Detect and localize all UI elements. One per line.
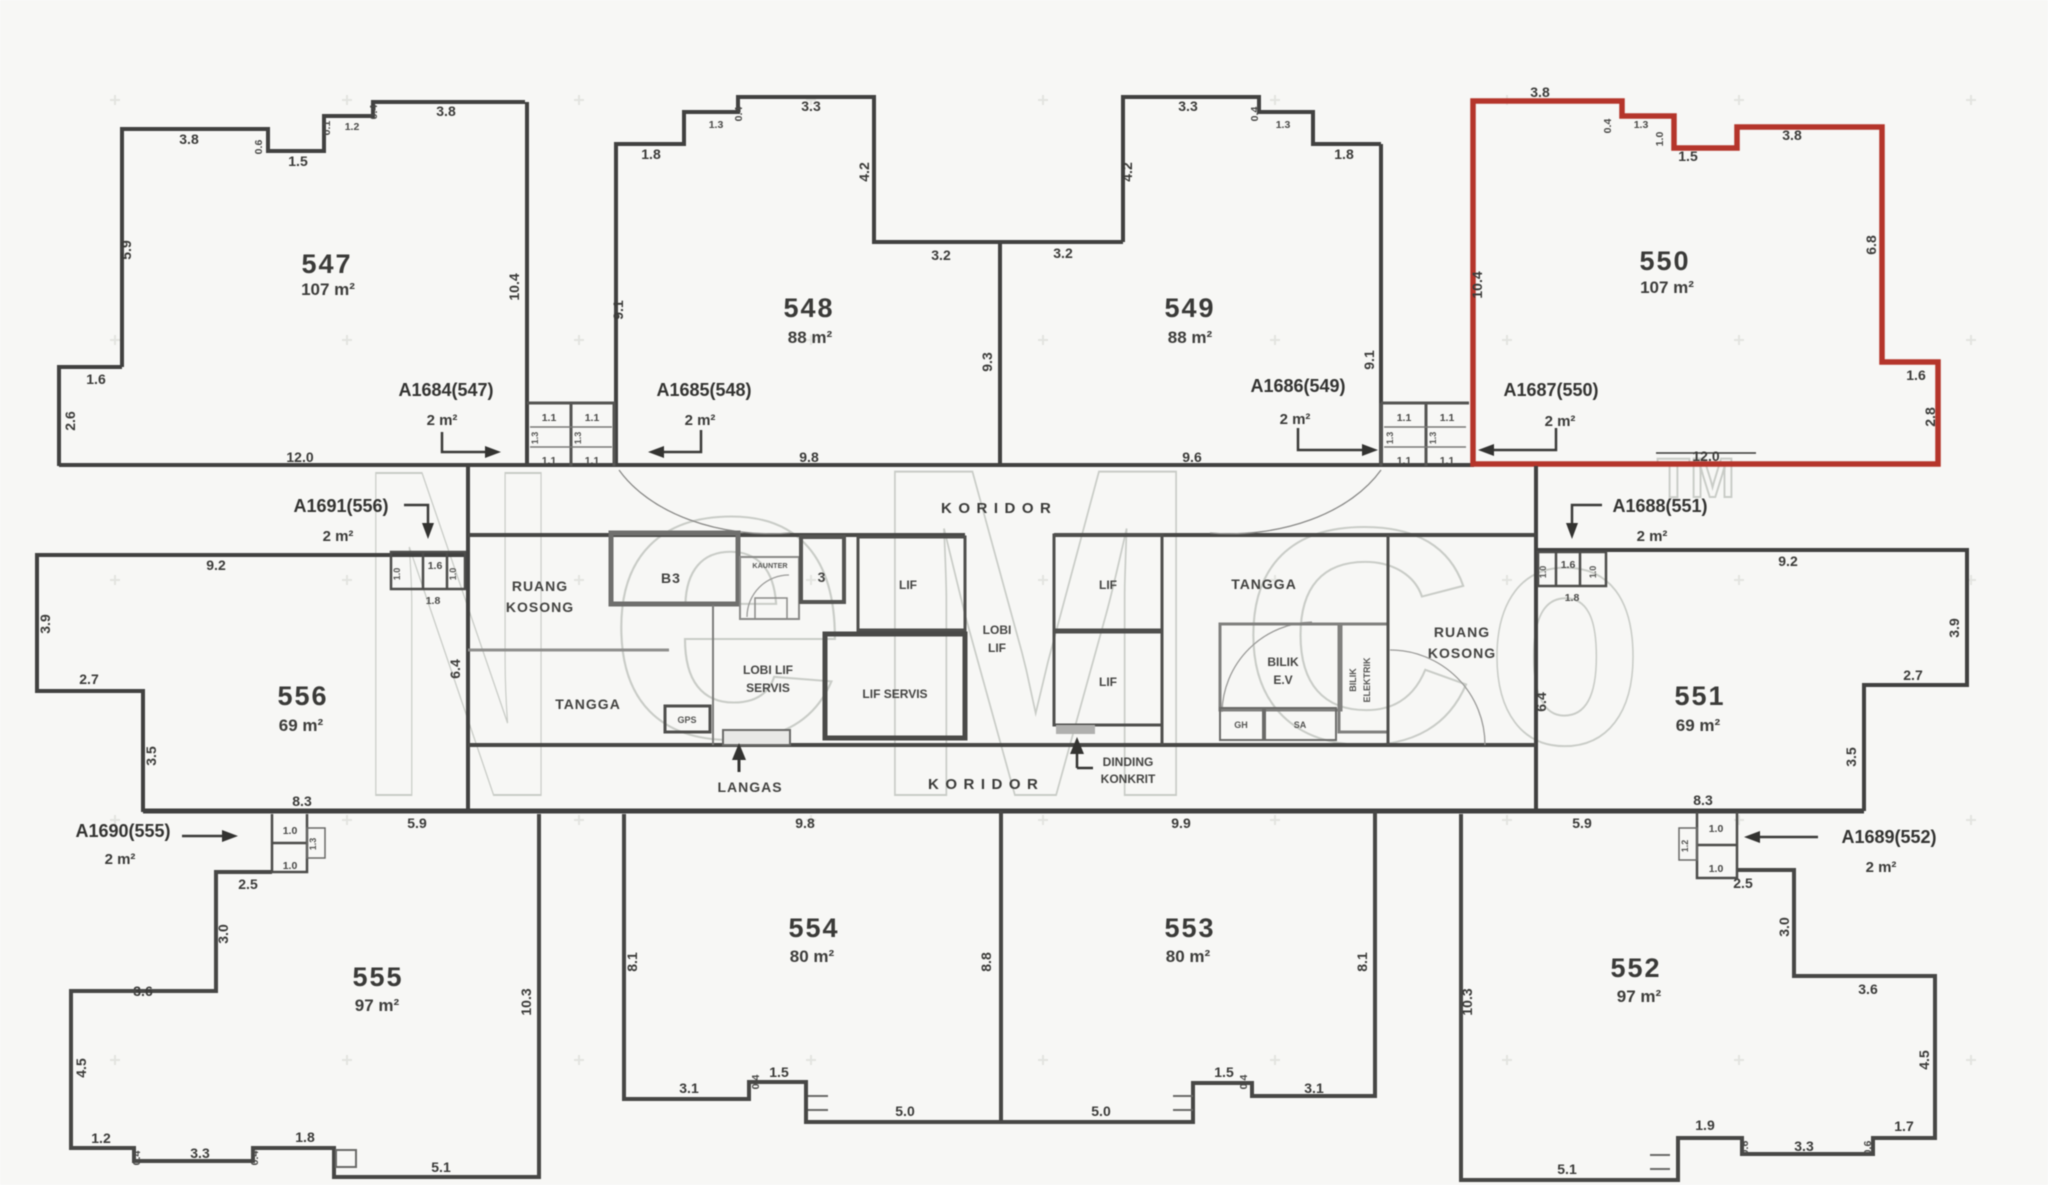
svg-text:3.8: 3.8 xyxy=(179,131,199,147)
svg-text:1.3: 1.3 xyxy=(573,432,583,445)
svg-text:BILIK: BILIK xyxy=(1267,655,1299,669)
svg-text:10.4: 10.4 xyxy=(506,273,522,300)
svg-text:2 m²: 2 m² xyxy=(685,412,716,429)
svg-text:3.1: 3.1 xyxy=(1304,1080,1324,1096)
svg-text:0.4: 0.4 xyxy=(1602,119,1614,134)
svg-text:552: 552 xyxy=(1610,953,1661,983)
svg-text:GH: GH xyxy=(1234,720,1248,730)
svg-text:9.8: 9.8 xyxy=(799,449,819,465)
svg-text:1.3: 1.3 xyxy=(1634,119,1649,131)
svg-text:LOBI LIF: LOBI LIF xyxy=(743,663,793,677)
svg-text:LIF: LIF xyxy=(988,641,1006,655)
svg-text:2.7: 2.7 xyxy=(79,671,99,687)
svg-text:A1690(555): A1690(555) xyxy=(75,821,170,841)
svg-text:3.8: 3.8 xyxy=(436,103,456,119)
svg-text:107 m²: 107 m² xyxy=(301,280,355,299)
svg-text:ELEKTRIK: ELEKTRIK xyxy=(1362,657,1372,703)
svg-text:9.1: 9.1 xyxy=(610,300,626,320)
svg-text:550: 550 xyxy=(1639,246,1690,276)
svg-text:RUANG: RUANG xyxy=(512,578,568,594)
svg-text:2.7: 2.7 xyxy=(1903,667,1923,683)
svg-text:1.0: 1.0 xyxy=(448,568,458,581)
svg-text:1.2: 1.2 xyxy=(91,1130,111,1146)
svg-text:KONKRIT: KONKRIT xyxy=(1101,772,1156,786)
svg-text:5.1: 5.1 xyxy=(431,1159,451,1175)
svg-text:1.5: 1.5 xyxy=(1214,1064,1234,1080)
svg-text:4.5: 4.5 xyxy=(1916,1050,1932,1070)
svg-text:A1689(552): A1689(552) xyxy=(1841,827,1936,847)
svg-text:LIF SERVIS: LIF SERVIS xyxy=(862,687,927,701)
svg-text:549: 549 xyxy=(1164,293,1215,323)
svg-text:DINDING: DINDING xyxy=(1103,755,1154,769)
svg-text:1.3: 1.3 xyxy=(1385,432,1395,445)
svg-text:2 m²: 2 m² xyxy=(323,528,354,545)
svg-text:SA: SA xyxy=(1294,720,1307,730)
svg-text:0.4: 0.4 xyxy=(1249,107,1261,122)
svg-text:1.5: 1.5 xyxy=(288,153,308,169)
svg-text:KAUNTER: KAUNTER xyxy=(752,561,788,570)
svg-text:KOSONG: KOSONG xyxy=(1428,645,1496,661)
svg-text:E.V: E.V xyxy=(1273,673,1292,687)
svg-text:1.1: 1.1 xyxy=(1440,455,1455,467)
svg-text:3.2: 3.2 xyxy=(931,247,951,263)
svg-text:1.6: 1.6 xyxy=(1906,367,1926,383)
svg-text:88 m²: 88 m² xyxy=(1168,328,1213,347)
svg-text:e: e xyxy=(604,368,850,823)
svg-text:0.4: 0.4 xyxy=(733,107,745,122)
svg-text:1.8: 1.8 xyxy=(426,595,441,607)
svg-text:B3: B3 xyxy=(661,570,681,586)
svg-text:97 m²: 97 m² xyxy=(355,996,400,1015)
svg-text:1.1: 1.1 xyxy=(1397,455,1412,467)
svg-text:1.0: 1.0 xyxy=(1538,566,1548,579)
svg-text:1.0: 1.0 xyxy=(1588,566,1598,579)
svg-text:A1688(551): A1688(551) xyxy=(1612,496,1707,516)
svg-text:4.2: 4.2 xyxy=(1119,162,1135,182)
svg-text:1.1: 1.1 xyxy=(542,455,557,467)
svg-text:107 m²: 107 m² xyxy=(1640,278,1694,297)
svg-text:1.5: 1.5 xyxy=(1678,148,1698,164)
svg-text:12.0: 12.0 xyxy=(286,449,313,465)
svg-text:KORIDOR: KORIDOR xyxy=(928,776,1044,793)
svg-text:3.3: 3.3 xyxy=(1794,1138,1814,1154)
svg-text:2 m²: 2 m² xyxy=(1545,413,1576,430)
svg-text:3.8: 3.8 xyxy=(1530,84,1550,100)
svg-text:8.8: 8.8 xyxy=(978,952,994,972)
svg-text:1.3: 1.3 xyxy=(1428,432,1438,445)
svg-text:8.3: 8.3 xyxy=(1693,792,1713,808)
svg-text:9.6: 9.6 xyxy=(1182,449,1202,465)
svg-text:1.9: 1.9 xyxy=(1695,1117,1715,1133)
svg-text:6.4: 6.4 xyxy=(1533,692,1549,712)
svg-text:1.3: 1.3 xyxy=(308,838,318,851)
svg-text:5.9: 5.9 xyxy=(118,240,134,260)
svg-text:1.0: 1.0 xyxy=(392,568,402,581)
svg-text:LANGAS: LANGAS xyxy=(717,779,782,795)
svg-text:554: 554 xyxy=(788,913,839,943)
svg-text:1.8: 1.8 xyxy=(1334,146,1354,162)
svg-text:KORIDOR: KORIDOR xyxy=(941,500,1057,517)
svg-text:3.6: 3.6 xyxy=(133,983,153,999)
svg-text:0.6: 0.6 xyxy=(253,140,265,155)
svg-text:1.0: 1.0 xyxy=(283,825,298,837)
svg-text:A1687(550): A1687(550) xyxy=(1503,380,1598,400)
svg-text:80 m²: 80 m² xyxy=(790,947,835,966)
svg-text:0.4: 0.4 xyxy=(249,1151,261,1166)
svg-text:0.4: 0.4 xyxy=(1238,1075,1250,1090)
svg-text:6.4: 6.4 xyxy=(447,659,463,679)
svg-text:BILIK: BILIK xyxy=(1348,668,1358,692)
svg-text:0.4: 0.4 xyxy=(131,1151,143,1166)
svg-text:2 m²: 2 m² xyxy=(1280,411,1311,428)
svg-text:1.1: 1.1 xyxy=(585,412,600,424)
svg-text:2 m²: 2 m² xyxy=(1866,859,1897,876)
svg-text:12.0: 12.0 xyxy=(1692,448,1719,464)
svg-text:2.6: 2.6 xyxy=(62,411,78,431)
svg-text:1.3: 1.3 xyxy=(709,119,724,131)
svg-text:3.8: 3.8 xyxy=(1782,127,1802,143)
svg-text:A1686(549): A1686(549) xyxy=(1250,376,1345,396)
svg-text:N: N xyxy=(357,372,560,895)
svg-text:547: 547 xyxy=(301,249,352,279)
svg-text:3.3: 3.3 xyxy=(190,1145,210,1161)
svg-text:9.8: 9.8 xyxy=(795,815,815,831)
svg-text:3.0: 3.0 xyxy=(1776,917,1792,937)
svg-text:TANGGA: TANGGA xyxy=(555,696,621,712)
svg-text:2.8: 2.8 xyxy=(1922,407,1938,427)
svg-text:2 m²: 2 m² xyxy=(105,851,136,868)
svg-text:TANGGA: TANGGA xyxy=(1231,576,1297,592)
svg-text:10.3: 10.3 xyxy=(518,988,534,1015)
svg-text:555: 555 xyxy=(352,962,403,992)
svg-text:1.0: 1.0 xyxy=(1654,132,1666,147)
svg-text:69 m²: 69 m² xyxy=(1676,716,1721,735)
svg-text:9.3: 9.3 xyxy=(979,352,995,372)
svg-text:88 m²: 88 m² xyxy=(788,328,833,347)
svg-text:10.4: 10.4 xyxy=(1469,271,1485,298)
svg-text:1.8: 1.8 xyxy=(295,1129,315,1145)
svg-text:3.6: 3.6 xyxy=(1858,981,1878,997)
svg-text:97 m²: 97 m² xyxy=(1617,987,1662,1006)
svg-text:1.0: 1.0 xyxy=(1709,863,1724,875)
svg-text:3.9: 3.9 xyxy=(1946,618,1962,638)
svg-text:69 m²: 69 m² xyxy=(279,716,324,735)
svg-text:3.9: 3.9 xyxy=(37,614,53,634)
svg-text:8.1: 8.1 xyxy=(624,952,640,972)
svg-text:1.7: 1.7 xyxy=(1894,1118,1914,1134)
svg-text:GPS: GPS xyxy=(677,715,696,725)
svg-text:548: 548 xyxy=(783,293,834,323)
svg-text:1.1: 1.1 xyxy=(1397,412,1412,424)
svg-text:1.3: 1.3 xyxy=(530,432,540,445)
svg-text:LIF: LIF xyxy=(1099,675,1117,689)
svg-text:1.6: 1.6 xyxy=(86,371,106,387)
svg-text:9.9: 9.9 xyxy=(1171,815,1191,831)
svg-text:SERVIS: SERVIS xyxy=(746,681,790,695)
svg-text:1.6: 1.6 xyxy=(428,560,443,572)
svg-text:556: 556 xyxy=(277,681,328,711)
svg-text:80 m²: 80 m² xyxy=(1166,947,1211,966)
svg-text:0.4: 0.4 xyxy=(750,1075,762,1090)
svg-text:3.5: 3.5 xyxy=(143,746,159,766)
svg-text:RUANG: RUANG xyxy=(1434,624,1490,640)
svg-text:2 m²: 2 m² xyxy=(427,412,458,429)
svg-text:1.3: 1.3 xyxy=(1276,119,1291,131)
svg-text:5.0: 5.0 xyxy=(1091,1103,1111,1119)
svg-text:5.0: 5.0 xyxy=(895,1103,915,1119)
svg-text:1.1: 1.1 xyxy=(542,412,557,424)
svg-text:3.3: 3.3 xyxy=(801,98,821,114)
svg-text:2.5: 2.5 xyxy=(238,876,258,892)
svg-text:1.2: 1.2 xyxy=(345,121,360,133)
svg-text:9.2: 9.2 xyxy=(1778,553,1798,569)
svg-text:A1685(548): A1685(548) xyxy=(656,380,751,400)
svg-text:5.9: 5.9 xyxy=(407,815,427,831)
svg-text:6.8: 6.8 xyxy=(1863,235,1879,255)
svg-text:1.8: 1.8 xyxy=(1565,592,1580,604)
svg-text:8.1: 8.1 xyxy=(1354,952,1370,972)
svg-text:9.1: 9.1 xyxy=(1361,350,1377,370)
svg-text:1.0: 1.0 xyxy=(283,860,298,872)
svg-text:LIF: LIF xyxy=(1099,578,1117,592)
svg-text:553: 553 xyxy=(1164,913,1215,943)
svg-text:1.2: 1.2 xyxy=(1680,840,1690,853)
svg-text:9.2: 9.2 xyxy=(206,557,226,573)
svg-text:2 m²: 2 m² xyxy=(1637,528,1668,545)
svg-text:4.5: 4.5 xyxy=(73,1058,89,1078)
svg-text:KOSONG: KOSONG xyxy=(506,599,574,615)
svg-text:1.0: 1.0 xyxy=(1709,823,1724,835)
svg-text:3.3: 3.3 xyxy=(1178,98,1198,114)
svg-text:LOBI: LOBI xyxy=(983,623,1012,637)
svg-text:0.4: 0.4 xyxy=(368,105,380,120)
svg-text:3.1: 3.1 xyxy=(679,1080,699,1096)
svg-text:0.6: 0.6 xyxy=(1862,1141,1874,1156)
svg-text:3.0: 3.0 xyxy=(215,924,231,944)
svg-text:1.1: 1.1 xyxy=(1440,412,1455,424)
svg-text:5.1: 5.1 xyxy=(1557,1161,1577,1177)
svg-text:3.5: 3.5 xyxy=(1843,747,1859,767)
svg-text:3: 3 xyxy=(818,569,827,585)
svg-text:1.6: 1.6 xyxy=(1561,559,1576,571)
svg-text:LIF: LIF xyxy=(899,578,917,592)
svg-text:4.2: 4.2 xyxy=(856,162,872,182)
svg-text:A1691(556): A1691(556) xyxy=(293,496,388,516)
svg-text:0.6: 0.6 xyxy=(1739,1141,1751,1156)
svg-text:8.3: 8.3 xyxy=(292,793,312,809)
svg-text:3.2: 3.2 xyxy=(1053,245,1073,261)
svg-text:1.1: 1.1 xyxy=(585,455,600,467)
svg-text:1.5: 1.5 xyxy=(769,1064,789,1080)
svg-text:551: 551 xyxy=(1674,681,1725,711)
svg-text:5.9: 5.9 xyxy=(1572,815,1592,831)
svg-text:1.8: 1.8 xyxy=(641,146,661,162)
svg-text:0.1: 0.1 xyxy=(321,121,333,136)
svg-text:A1684(547): A1684(547) xyxy=(398,380,493,400)
svg-text:10.3: 10.3 xyxy=(1459,988,1475,1015)
